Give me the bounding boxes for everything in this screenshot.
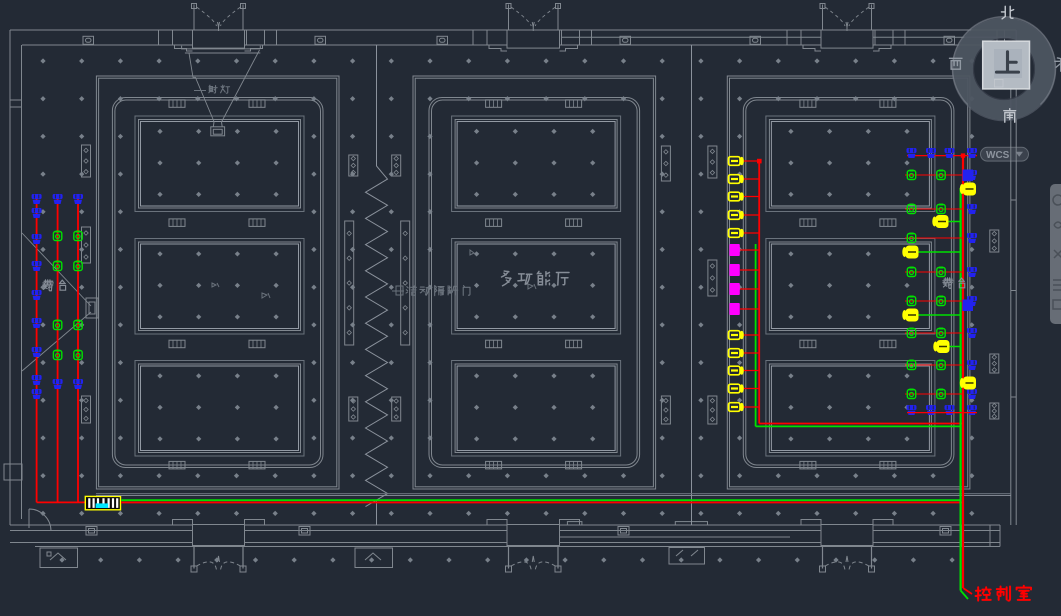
svg-text:WCS: WCS [986,150,1010,161]
